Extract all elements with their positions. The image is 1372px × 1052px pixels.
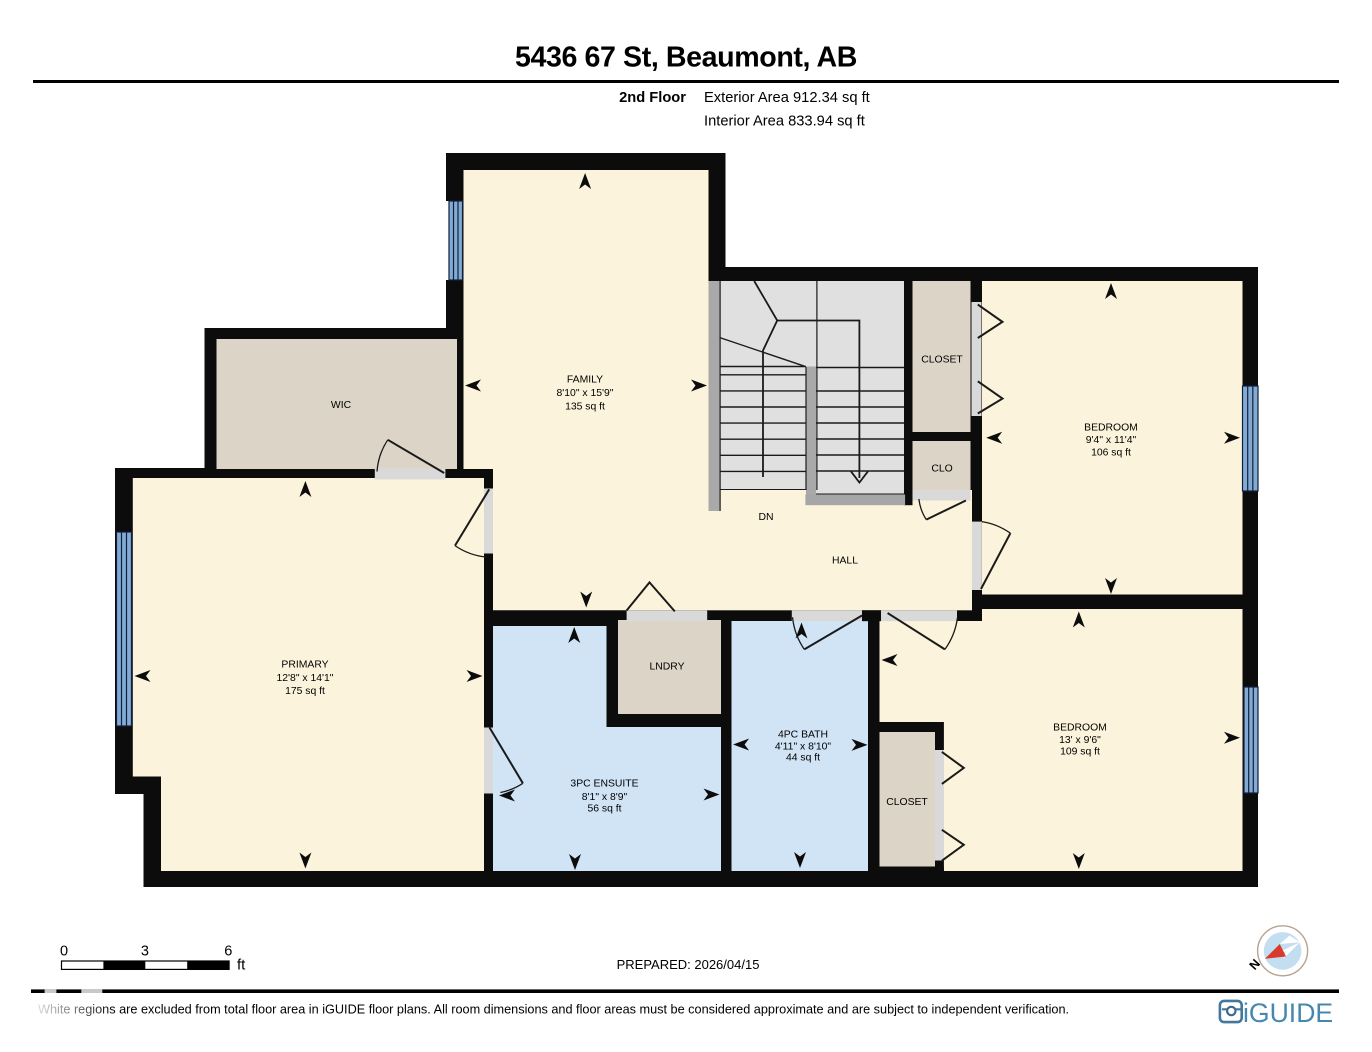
svg-text:Interior Area 833.94 sq ft: Interior Area 833.94 sq ft — [704, 114, 865, 130]
svg-text:CLOSET: CLOSET — [886, 797, 928, 808]
svg-text:White regions are excluded fro: White regions are excluded from total fl… — [38, 1002, 1069, 1016]
svg-text:DN: DN — [758, 512, 773, 523]
svg-text:8'1" x 8'9": 8'1" x 8'9" — [582, 792, 628, 803]
svg-text:56 sq ft: 56 sq ft — [587, 804, 621, 815]
svg-text:CLO: CLO — [931, 464, 952, 475]
svg-text:12'8" x 14'1": 12'8" x 14'1" — [277, 673, 334, 684]
svg-text:LNDRY: LNDRY — [649, 662, 684, 673]
svg-text:3PC ENSUITE: 3PC ENSUITE — [570, 779, 638, 790]
svg-text:0: 0 — [60, 944, 68, 960]
svg-text:iGUIDE: iGUIDE — [1243, 998, 1333, 1028]
svg-text:4'11" x 8'10": 4'11" x 8'10" — [775, 742, 832, 753]
svg-text:175 sq ft: 175 sq ft — [285, 686, 325, 697]
svg-text:13' x 9'6": 13' x 9'6" — [1059, 735, 1101, 746]
svg-text:PRIMARY: PRIMARY — [281, 660, 328, 671]
svg-text:WIC: WIC — [331, 400, 352, 411]
svg-text:9'4" x 11'4": 9'4" x 11'4" — [1086, 435, 1137, 446]
svg-text:PREPARED: 2026/04/15: PREPARED: 2026/04/15 — [617, 957, 760, 972]
svg-text:8'10" x 15'9": 8'10" x 15'9" — [557, 388, 614, 399]
svg-text:135 sq ft: 135 sq ft — [565, 402, 605, 413]
svg-text:BEDROOM: BEDROOM — [1053, 723, 1107, 734]
svg-text:ft: ft — [237, 957, 246, 974]
svg-text:109 sq ft: 109 sq ft — [1060, 747, 1100, 758]
svg-text:3: 3 — [141, 944, 149, 960]
svg-text:FAMILY: FAMILY — [567, 375, 603, 386]
svg-text:CLOSET: CLOSET — [921, 355, 963, 366]
svg-text:2nd Floor: 2nd Floor — [619, 90, 686, 106]
svg-text:BEDROOM: BEDROOM — [1084, 423, 1138, 434]
svg-text:HALL: HALL — [832, 556, 858, 567]
svg-text:6: 6 — [224, 944, 232, 960]
svg-text:5436 67 St, Beaumont, AB: 5436 67 St, Beaumont, AB — [515, 42, 857, 74]
svg-text:44 sq ft: 44 sq ft — [786, 753, 820, 764]
svg-text:Exterior Area 912.34 sq ft: Exterior Area 912.34 sq ft — [704, 90, 870, 106]
svg-text:106 sq ft: 106 sq ft — [1091, 447, 1131, 458]
svg-text:4PC BATH: 4PC BATH — [778, 729, 828, 740]
